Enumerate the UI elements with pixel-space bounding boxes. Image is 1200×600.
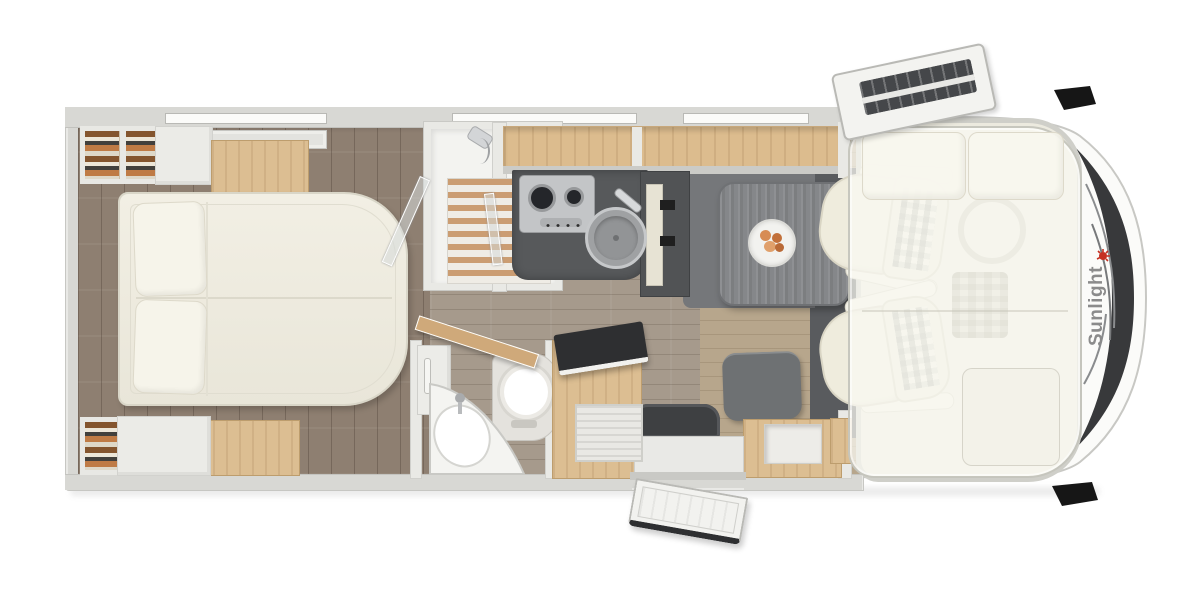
- burner-small: [564, 187, 584, 207]
- fridge-hinge-top: [660, 200, 675, 210]
- fridge-tower: [640, 171, 690, 297]
- kitchen-sink: [585, 207, 647, 269]
- drop-down-bed-pillow-left: [862, 132, 966, 200]
- side-mirror-bottom: [1052, 482, 1098, 506]
- hob-knobs: [540, 218, 582, 227]
- mattress-seam: [136, 297, 392, 299]
- sunlight-logo-text: Sunlight: [1086, 266, 1107, 346]
- wardrobe-clothes: [85, 131, 119, 179]
- drop-down-bed-pillow-right: [968, 132, 1064, 200]
- food-item: [775, 243, 784, 252]
- gas-hob: [519, 175, 595, 233]
- tambour-roller-door: [575, 404, 643, 462]
- entry-threshold: [630, 472, 746, 480]
- overhead-cabinet-bed-top: [155, 126, 213, 185]
- side-mirror-top: [1054, 86, 1096, 110]
- sink-lid-knob: [613, 235, 619, 241]
- drop-down-bed-fold: [962, 368, 1060, 466]
- bedside-shelf-top: [211, 140, 309, 194]
- wardrobe-clothes: [85, 422, 119, 470]
- sideboard-open-shelf: [764, 424, 822, 464]
- corner-washbasin: [428, 374, 528, 478]
- floorplan-scene: Sunlight: [0, 0, 1200, 600]
- drop-down-bed-seam: [862, 310, 1068, 312]
- entry-door-mat: [632, 404, 720, 438]
- entry-door-panel: [637, 486, 739, 534]
- cabinet-bed-bottom: [117, 416, 211, 476]
- sideboard-cabinet: [743, 419, 842, 478]
- burner-large: [528, 184, 556, 212]
- basin-faucet: [455, 393, 465, 403]
- window-strip-dinette: [683, 113, 809, 124]
- dinette-stool: [722, 351, 802, 422]
- plate-of-food: [748, 219, 796, 267]
- food-item: [760, 230, 771, 241]
- wardrobe-top: [80, 126, 162, 184]
- mattress-head-seam: [206, 202, 208, 396]
- window-strip-bedroom: [165, 113, 327, 124]
- fridge-hinge-bottom: [660, 236, 675, 246]
- shower-hose: [470, 138, 490, 164]
- pillow-bottom: [132, 299, 207, 395]
- pillow-top: [132, 201, 207, 297]
